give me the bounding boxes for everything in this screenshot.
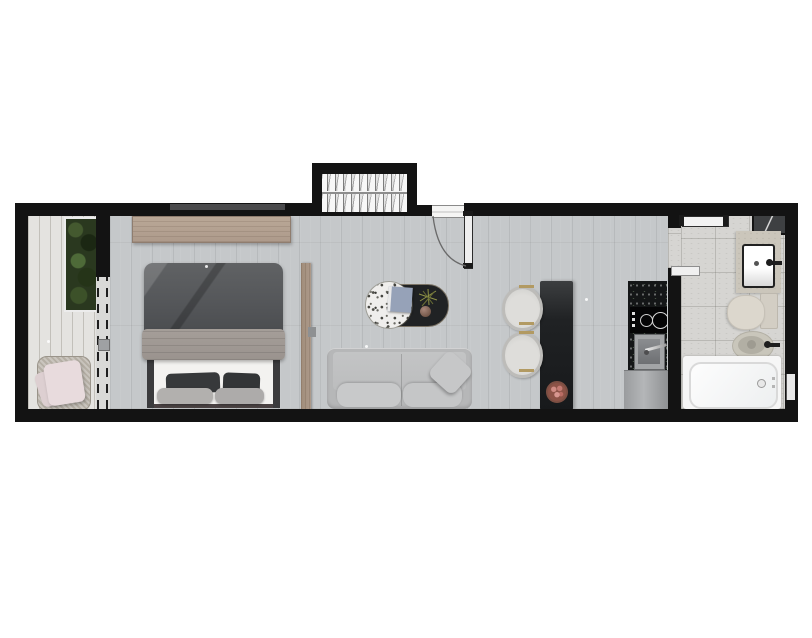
floor-speck <box>47 340 50 343</box>
bed-frame-left <box>147 356 154 408</box>
chair-2-brass-top <box>519 331 534 334</box>
lounge-chair-seat-cushion <box>43 359 86 406</box>
bathtub-drain <box>757 379 766 388</box>
sliding-door-handle <box>98 339 110 351</box>
bathroom-door-cap-right <box>723 215 728 226</box>
book <box>387 286 413 313</box>
kitchen-sink-basin <box>638 339 660 364</box>
entry-jamb <box>417 205 432 216</box>
stair-flight-upper <box>322 174 407 191</box>
bathroom-doorway-floor <box>668 228 681 268</box>
cooktop-knob-3 <box>632 324 635 327</box>
wall-shelf <box>132 216 291 243</box>
bidet-drain <box>747 340 756 349</box>
bed-frame-right <box>273 356 280 408</box>
floor-speck <box>585 298 588 301</box>
wood-sliding-panel <box>301 263 311 411</box>
cooktop-burner-large <box>652 312 669 329</box>
bed-duvet <box>144 263 283 333</box>
wall-left <box>15 203 28 422</box>
kitchen-faucet-base <box>644 350 649 355</box>
bed-pillow-light-right <box>215 388 264 404</box>
washbasin-faucet-base <box>766 259 773 266</box>
chair-1-brass-top <box>519 285 534 288</box>
cooktop-knob-2 <box>632 318 635 321</box>
balcony-divider-wall <box>96 203 110 277</box>
refrigerator <box>624 370 668 410</box>
chair-1-brass-bottom <box>519 322 534 325</box>
bed-pillow-light-left <box>157 388 213 404</box>
washbasin-drain <box>754 261 759 266</box>
toilet-bowl <box>727 295 765 330</box>
wall-top-right <box>464 203 798 216</box>
decor-sphere <box>420 306 431 317</box>
fruit-bowl <box>546 381 568 403</box>
bathroom-door-cap-left <box>679 215 684 226</box>
floor-speck <box>205 265 208 268</box>
cooktop-knob-1 <box>632 312 635 315</box>
floor-plan-canvas <box>0 0 812 638</box>
entry-door-leaf <box>464 213 473 269</box>
bidet-faucet-base <box>764 341 771 348</box>
entry-door-cap-top <box>463 211 473 216</box>
bath-wall-lower <box>668 268 681 409</box>
bed-blanket <box>142 329 285 360</box>
entry-threshold <box>432 205 464 218</box>
chair-2-brass-bottom <box>519 369 534 372</box>
stair-flight-lower <box>322 194 407 212</box>
bathtub-control-2 <box>772 385 775 388</box>
wood-panel-tab <box>308 327 316 337</box>
bedroom-window-band <box>170 204 285 210</box>
sofa-cushion-left <box>337 383 401 407</box>
tub-wall-niche <box>786 374 795 400</box>
bathroom-door-leaf <box>682 216 729 227</box>
bathtub-control-1 <box>772 377 775 380</box>
washbasin <box>742 244 775 288</box>
entry-door-cap-bottom <box>463 263 473 268</box>
bathroom-door-jamb <box>671 266 700 276</box>
sofa-split-line <box>401 354 402 406</box>
planter <box>64 217 100 312</box>
floor-speck <box>365 345 368 348</box>
wall-bottom <box>15 409 798 422</box>
